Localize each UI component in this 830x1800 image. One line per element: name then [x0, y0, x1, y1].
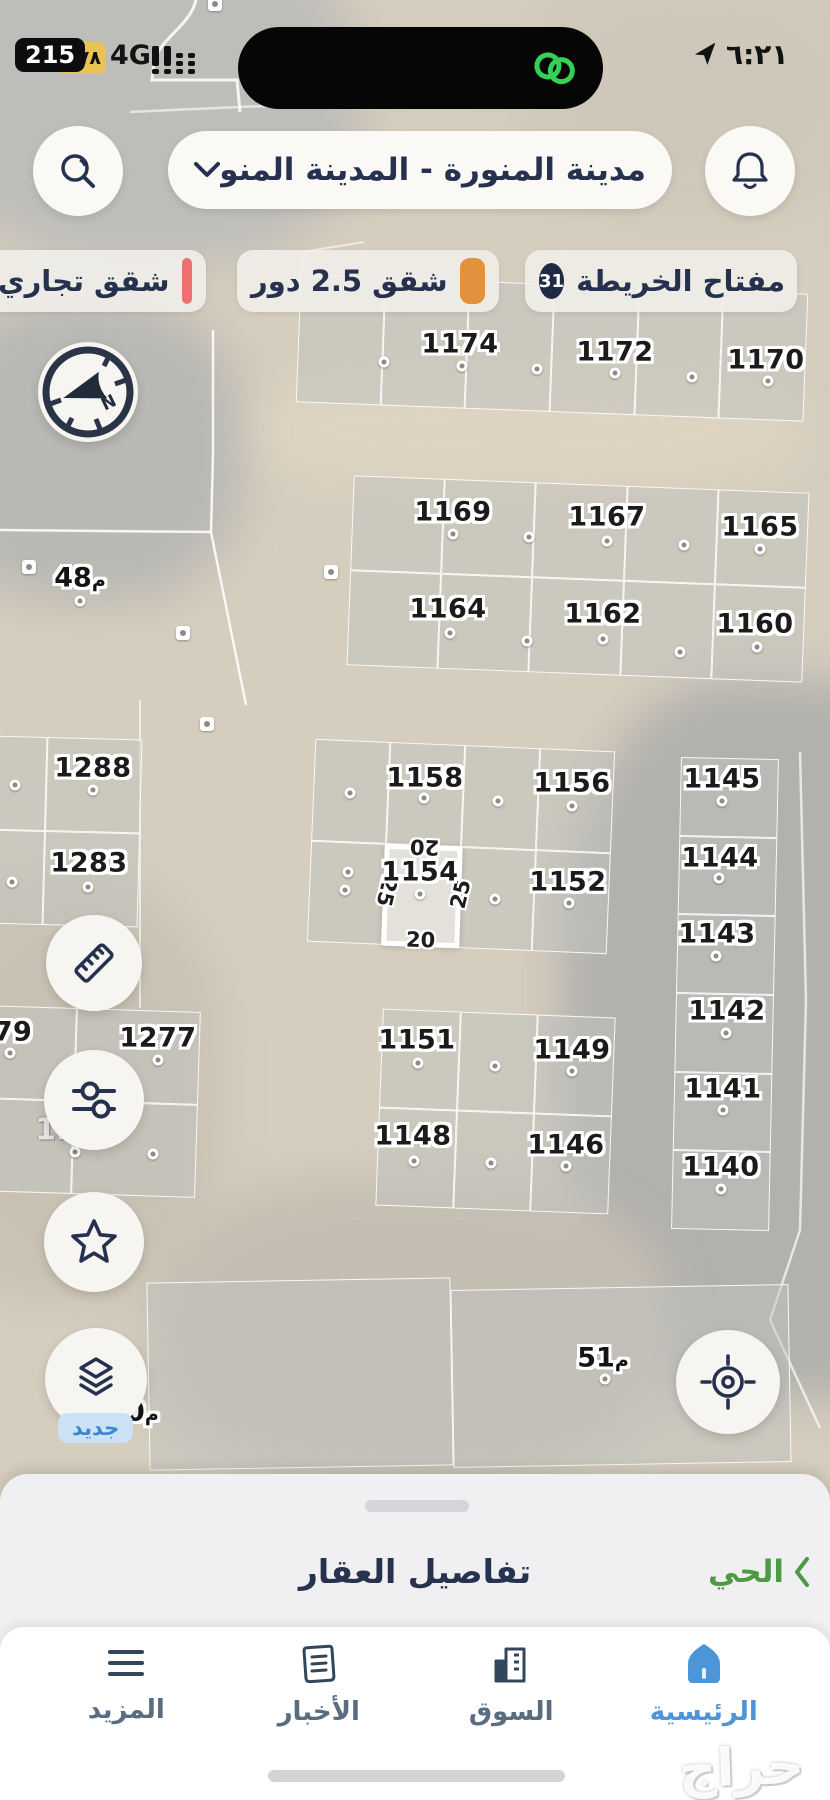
plot-marker-dot[interactable]: [522, 636, 533, 647]
plot-label-1277[interactable]: 1277: [119, 1023, 196, 1054]
legend-chip-apartments: شقق 2.5 دور: [237, 250, 499, 312]
measure-dot: [600, 1374, 611, 1385]
market-buildings-icon: [488, 1641, 534, 1687]
plot-marker-dot[interactable]: [409, 1156, 420, 1167]
plot-label-1167[interactable]: 1167: [568, 502, 645, 533]
ruler-icon: [68, 937, 120, 989]
signal-bars-icon: [152, 42, 195, 74]
plot-label-1172[interactable]: 1172: [576, 337, 653, 368]
plot-label-1154[interactable]: 1154: [381, 857, 458, 888]
plot-label-1151[interactable]: 1151: [378, 1025, 455, 1056]
plot-marker-dot[interactable]: [718, 1105, 729, 1116]
plot-marker-dot[interactable]: [343, 867, 354, 878]
plot-label-1165[interactable]: 1165: [721, 512, 798, 543]
plot-marker-dot[interactable]: [415, 889, 426, 900]
plot-marker-dot[interactable]: [752, 642, 763, 653]
location-arrow-icon: [694, 43, 718, 67]
plot-dimension-bottom: 20: [406, 927, 436, 952]
plot-label-1149[interactable]: 1149: [533, 1035, 610, 1066]
plot-label-1143[interactable]: 1143: [678, 919, 755, 950]
home-icon: [680, 1641, 728, 1687]
boundary-marker: [324, 565, 338, 579]
newspaper-icon: [296, 1641, 342, 1687]
legend-chip-commercial: شقق تجاري: [0, 250, 206, 312]
location-selector-text: مدينة المنورة - المدينة المنور: [220, 152, 646, 188]
plot-label-1152[interactable]: 1152: [529, 867, 606, 898]
plot-label-1162[interactable]: 1162: [564, 599, 641, 630]
link-icon: [531, 45, 577, 91]
nav-item-more[interactable]: المزيد: [56, 1641, 196, 1800]
legend-count-badge: 31: [539, 263, 564, 299]
nav-label: المزيد: [88, 1695, 165, 1725]
favorites-star-button[interactable]: [44, 1192, 144, 1292]
plot-marker-dot[interactable]: [716, 1184, 727, 1195]
sheet-title: تفاصيل العقار: [0, 1552, 830, 1591]
neighborhood-link-label: الحي: [708, 1554, 784, 1590]
plot-label-1160[interactable]: 1160: [716, 609, 793, 640]
street-width-label: 48م: [54, 563, 106, 594]
parcel-cell[interactable]: [536, 748, 615, 853]
plot-marker-dot[interactable]: [490, 894, 501, 905]
plot-marker-dot[interactable]: [675, 647, 686, 658]
plot-label-1156[interactable]: 1156: [533, 768, 610, 799]
plot-label-1174[interactable]: 1174: [421, 329, 498, 360]
compass[interactable]: N: [38, 342, 138, 442]
bell-icon: [727, 147, 773, 195]
nav-label: الرئيسية: [650, 1697, 758, 1727]
plot-marker-dot[interactable]: [493, 796, 504, 807]
plot-marker-dot[interactable]: [567, 1066, 578, 1077]
plot-marker-dot[interactable]: [714, 873, 725, 884]
chevron-down-icon: [194, 161, 220, 179]
plot-label-1144[interactable]: 1144: [681, 843, 758, 874]
dynamic-island: [238, 27, 603, 109]
plot-marker-dot[interactable]: [486, 1158, 497, 1169]
parcel-cell[interactable]: [43, 831, 140, 927]
parcel-cell[interactable]: [146, 1277, 453, 1470]
location-selector[interactable]: مدينة المنورة - المدينة المنور: [168, 131, 672, 209]
boundary-marker: [176, 626, 190, 640]
plot-label-1146[interactable]: 1146: [527, 1130, 604, 1161]
legend-color-swatch: [182, 258, 192, 304]
plot-label-1169[interactable]: 1169: [414, 497, 491, 528]
plot-marker-dot[interactable]: [153, 1055, 164, 1066]
more-menu-icon: [104, 1641, 148, 1685]
legend-chip-label: شقق تجاري: [0, 264, 170, 298]
legend-key-label: مفتاح الخريطة: [576, 264, 785, 298]
time-text: ٦:٢١: [726, 38, 788, 71]
plot-marker-dot[interactable]: [7, 877, 18, 888]
watermark: حراج: [678, 1736, 805, 1800]
app-screen: 20 25 25 20 1174117211701169116711651164…: [0, 0, 830, 1800]
filter-sliders-button[interactable]: [44, 1050, 144, 1150]
app-count-badge: 215: [15, 38, 85, 72]
plot-marker-dot[interactable]: [340, 885, 351, 896]
plot-marker-dot[interactable]: [763, 376, 774, 387]
chevron-left-icon: [794, 1557, 810, 1587]
clock: ٦:٢١: [694, 38, 788, 71]
legend-key-chip[interactable]: 31 مفتاح الخريطة: [525, 250, 797, 312]
locate-me-button[interactable]: [676, 1330, 780, 1434]
plot-label-1142[interactable]: 1142: [688, 996, 765, 1027]
plot-marker-dot[interactable]: [448, 529, 459, 540]
plot-marker-dot[interactable]: [10, 780, 21, 791]
plot-marker-dot[interactable]: [88, 785, 99, 796]
plot-marker-dot[interactable]: [721, 1028, 732, 1039]
plot-label-1158[interactable]: 1158: [386, 763, 463, 794]
layers-icon: [67, 1350, 125, 1408]
notifications-button[interactable]: [705, 126, 795, 216]
parcel-cell[interactable]: [620, 581, 715, 679]
plot-marker-dot[interactable]: [717, 796, 728, 807]
plot-marker-dot[interactable]: [148, 1149, 159, 1160]
plot-label-1288[interactable]: 1288: [54, 753, 131, 784]
plot-marker-dot[interactable]: [711, 951, 722, 962]
search-icon: [56, 149, 100, 193]
plot-label-79[interactable]: 79: [0, 1017, 32, 1048]
home-indicator[interactable]: [268, 1770, 565, 1782]
plot-marker-dot[interactable]: [457, 361, 468, 372]
plot-marker-dot[interactable]: [755, 544, 766, 555]
plot-marker-dot[interactable]: [679, 540, 690, 551]
measure-ruler-button[interactable]: [46, 915, 142, 1011]
plot-marker-dot[interactable]: [564, 898, 575, 909]
plot-marker-dot[interactable]: [561, 1161, 572, 1172]
compass-icon: N: [38, 342, 138, 442]
plot-label-1141[interactable]: 1141: [684, 1074, 761, 1105]
plot-marker-dot[interactable]: [567, 801, 578, 812]
plot-marker-dot[interactable]: [602, 536, 613, 547]
plot-label-1164[interactable]: 1164: [409, 594, 486, 625]
crosshair-target-icon: [698, 1352, 758, 1412]
neighborhood-link[interactable]: الحي: [708, 1554, 810, 1590]
parcel-cell[interactable]: [0, 735, 47, 831]
star-icon: [66, 1214, 122, 1270]
nav-label: الأخبار: [278, 1697, 360, 1727]
plot-marker-dot[interactable]: [687, 372, 698, 383]
plot-marker-dot[interactable]: [610, 368, 621, 379]
parcel-cell[interactable]: [441, 479, 536, 577]
plot-marker-dot[interactable]: [413, 1058, 424, 1069]
plot-label-1170[interactable]: 1170: [727, 345, 804, 376]
plot-label-1283[interactable]: 1283: [50, 848, 127, 879]
plot-marker-dot[interactable]: [345, 788, 356, 799]
plot-marker-dot[interactable]: [70, 1147, 81, 1158]
plot-label-1140[interactable]: 1140: [682, 1152, 759, 1183]
plot-marker-dot[interactable]: [5, 1048, 16, 1059]
parcel-cell[interactable]: [0, 829, 45, 925]
plot-marker-dot[interactable]: [524, 532, 535, 543]
boundary-marker: [22, 560, 36, 574]
plot-marker-dot[interactable]: [598, 634, 609, 645]
plot-label-1145[interactable]: 1145: [683, 764, 760, 795]
boundary-marker: [200, 717, 214, 731]
nav-label: السوق: [469, 1697, 554, 1727]
new-feature-badge: جديد: [58, 1413, 133, 1443]
measure-dot: [75, 596, 86, 607]
legend-color-swatch: [460, 258, 485, 304]
plot-marker-dot[interactable]: [490, 1061, 501, 1072]
plot-marker-dot[interactable]: [532, 364, 543, 375]
plot-marker-dot[interactable]: [445, 628, 456, 639]
parcel-block: [146, 1277, 453, 1470]
sliders-icon: [66, 1072, 122, 1128]
street-width-label: 51م: [577, 1343, 629, 1374]
plot-marker-dot[interactable]: [83, 882, 94, 893]
network-type-label: 4G: [110, 40, 151, 71]
sheet-drag-handle[interactable]: [365, 1500, 469, 1512]
plot-marker-dot[interactable]: [419, 793, 430, 804]
status-bar: ٧٨ 215 4G ٦:٢١: [0, 0, 830, 115]
plot-marker-dot[interactable]: [379, 357, 390, 368]
legend-chip-label: شقق 2.5 دور: [251, 264, 448, 298]
search-button[interactable]: [33, 126, 123, 216]
plot-label-1148[interactable]: 1148: [374, 1121, 451, 1152]
